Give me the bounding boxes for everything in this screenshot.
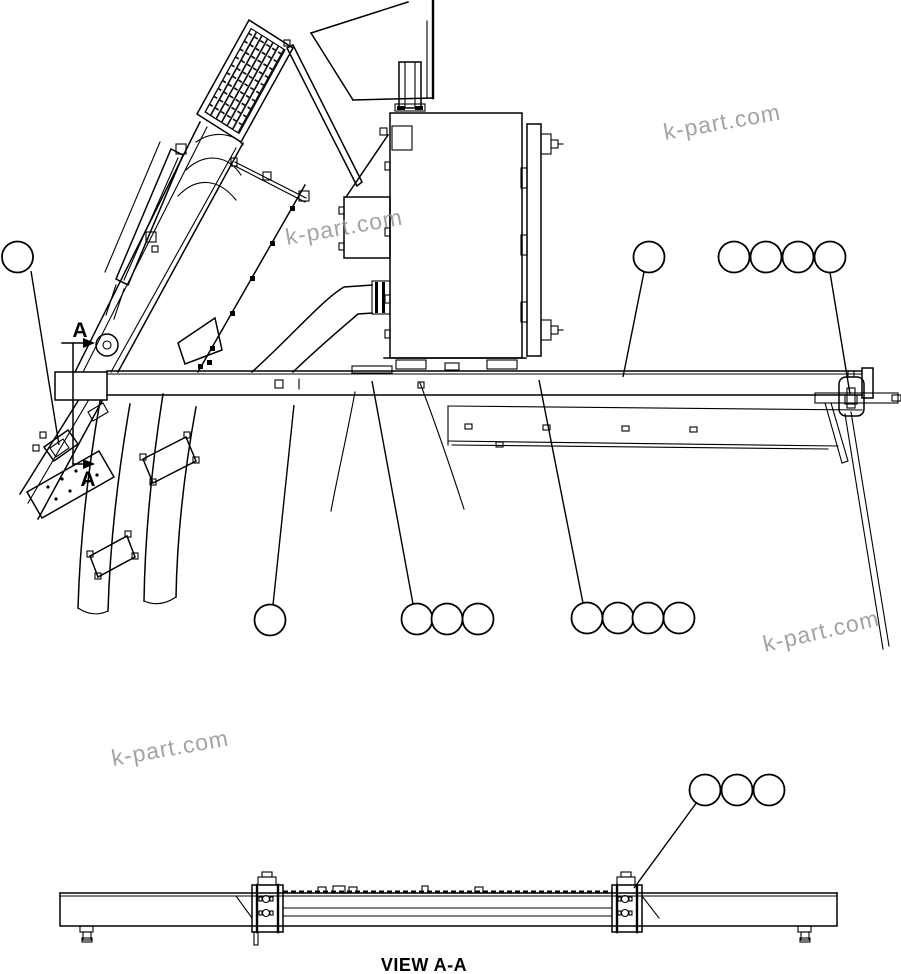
callouts-view-aa <box>634 775 785 889</box>
foot-bolt-left <box>80 926 93 942</box>
lower-boom-and-hoses <box>20 394 199 614</box>
watermark-text: k-part.com <box>109 725 230 771</box>
watermark-text: k-part.com <box>661 99 782 145</box>
callout-circle <box>463 604 494 635</box>
callout-circle <box>754 775 785 806</box>
parts-diagram-page: A A <box>0 0 901 974</box>
junction-box <box>178 318 222 369</box>
callout-circle <box>633 603 664 634</box>
engine-box <box>352 113 563 373</box>
section-label-bottom: A <box>80 468 95 491</box>
mount-bracket-left <box>236 872 283 945</box>
view-label: VIEW A-A <box>381 955 467 974</box>
callout-circle <box>603 603 634 634</box>
boom-cylinder <box>96 142 186 356</box>
callout-circle <box>2 242 33 273</box>
callout-circle <box>722 775 753 806</box>
callout-circle <box>664 603 695 634</box>
bumper-beam <box>55 368 873 400</box>
end-bracket <box>815 371 901 649</box>
mount-bracket-right <box>612 872 659 932</box>
watermarks: k-part.com k-part.com k-part.com k-part.… <box>109 99 881 771</box>
foot-bolt-right <box>798 926 811 942</box>
main-view: A A <box>2 0 901 649</box>
view-a-a: VIEW A-A <box>60 775 837 974</box>
section-label-top: A <box>72 319 87 342</box>
callout-circle <box>402 604 433 635</box>
callout-circle <box>432 604 463 635</box>
callout-circle <box>719 242 750 273</box>
watermark-text: k-part.com <box>760 605 881 657</box>
callout-circle <box>634 242 665 273</box>
callout-circle <box>751 242 782 273</box>
hydraulic-hoses-upper <box>252 281 390 372</box>
callout-circle <box>690 775 721 806</box>
hopper-grate <box>197 20 362 202</box>
exhaust-duct <box>395 62 425 111</box>
callout-circle <box>783 242 814 273</box>
callout-circle <box>255 605 286 636</box>
callout-circle <box>572 603 603 634</box>
grate-hatch <box>205 29 284 134</box>
parts-diagram-canvas: A A <box>0 0 901 974</box>
side-sheet <box>331 383 862 511</box>
callouts-main-view <box>2 242 850 636</box>
callout-circle <box>815 242 846 273</box>
